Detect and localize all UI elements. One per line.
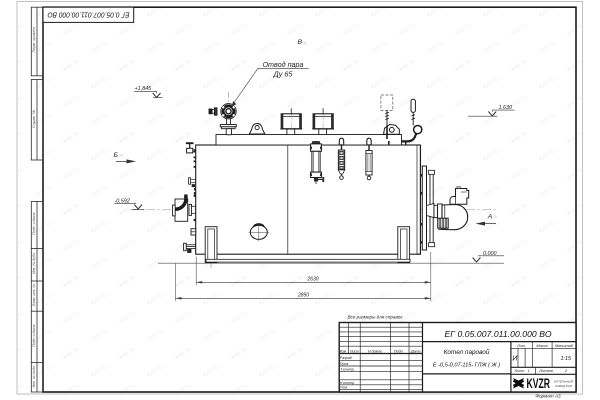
svg-text:ЕГ 0.05.007.011.00.000 ВО: ЕГ 0.05.007.011.00.000 ВО	[445, 329, 552, 339]
svg-text:Подп. и дата: Подп. и дата	[32, 213, 36, 236]
svg-text:Котел паровой: Котел паровой	[444, 348, 490, 356]
svg-text:Формат А3: Формат А3	[535, 394, 561, 399]
svg-text:Изм: Изм	[340, 350, 347, 354]
svg-text:Лист: Лист	[349, 350, 359, 354]
svg-text:Отвод пара: Отвод пара	[262, 60, 303, 69]
svg-text:Б: Б	[114, 152, 119, 159]
svg-text:Справ. №: Справ. №	[31, 109, 36, 128]
svg-text:Перв. примен.: Перв. примен.	[31, 26, 36, 53]
svg-text:КОТЕЛЬНЫЙ: КОТЕЛЬНЫЙ	[554, 379, 574, 383]
svg-text:2850: 2850	[297, 292, 309, 298]
svg-text:Н.контр.: Н.контр.	[340, 381, 355, 385]
svg-text:20: 20	[302, 42, 307, 46]
svg-text:ЗАВОД РЭП: ЗАВОД РЭП	[555, 384, 573, 388]
svg-text:Разраб.: Разраб.	[340, 356, 353, 360]
svg-text:Все размеры для справок: Все размеры для справок	[347, 315, 403, 320]
svg-text:А: А	[487, 213, 493, 220]
svg-text:Пров.: Пров.	[340, 362, 349, 366]
svg-text:Утв.: Утв.	[340, 386, 348, 390]
svg-text:20: 20	[119, 154, 124, 158]
svg-text:1: 1	[528, 369, 530, 373]
svg-text:Масштаб: Масштаб	[555, 344, 574, 348]
svg-text:Дата: Дата	[410, 350, 420, 354]
svg-text:Инв. № дубл.: Инв. № дубл.	[32, 252, 36, 274]
svg-text:Листов: Листов	[538, 369, 553, 373]
svg-text:N докум.: N докум.	[368, 350, 383, 354]
svg-text:1:15: 1:15	[561, 356, 572, 362]
svg-text:Лист: Лист	[514, 369, 525, 373]
svg-text:2630: 2630	[306, 276, 318, 282]
svg-text:Е -0,5-0,07-115- ГЛЖ ( Ж ): Е -0,5-0,07-115- ГЛЖ ( Ж )	[433, 362, 500, 368]
svg-text:Т.контр.: Т.контр.	[340, 368, 355, 372]
svg-text:Подп. и дата: Подп. и дата	[32, 325, 36, 348]
svg-text:20: 20	[492, 215, 497, 219]
svg-text:Лит.: Лит.	[516, 344, 526, 348]
svg-text:Масса: Масса	[536, 344, 547, 348]
svg-text:Взам. инв. №: Взам. инв. №	[32, 284, 36, 306]
svg-text:ЕГ 0.05.007.011.00.000 ВО: ЕГ 0.05.007.011.00.000 ВО	[47, 10, 130, 17]
svg-text:KVZR: KVZR	[527, 376, 551, 391]
svg-text:В: В	[298, 39, 303, 46]
svg-text:Ду 65: Ду 65	[273, 70, 294, 79]
svg-text:Инв. № подл.: Инв. № подл.	[32, 365, 36, 387]
svg-text:Подп.: Подп.	[394, 350, 404, 354]
